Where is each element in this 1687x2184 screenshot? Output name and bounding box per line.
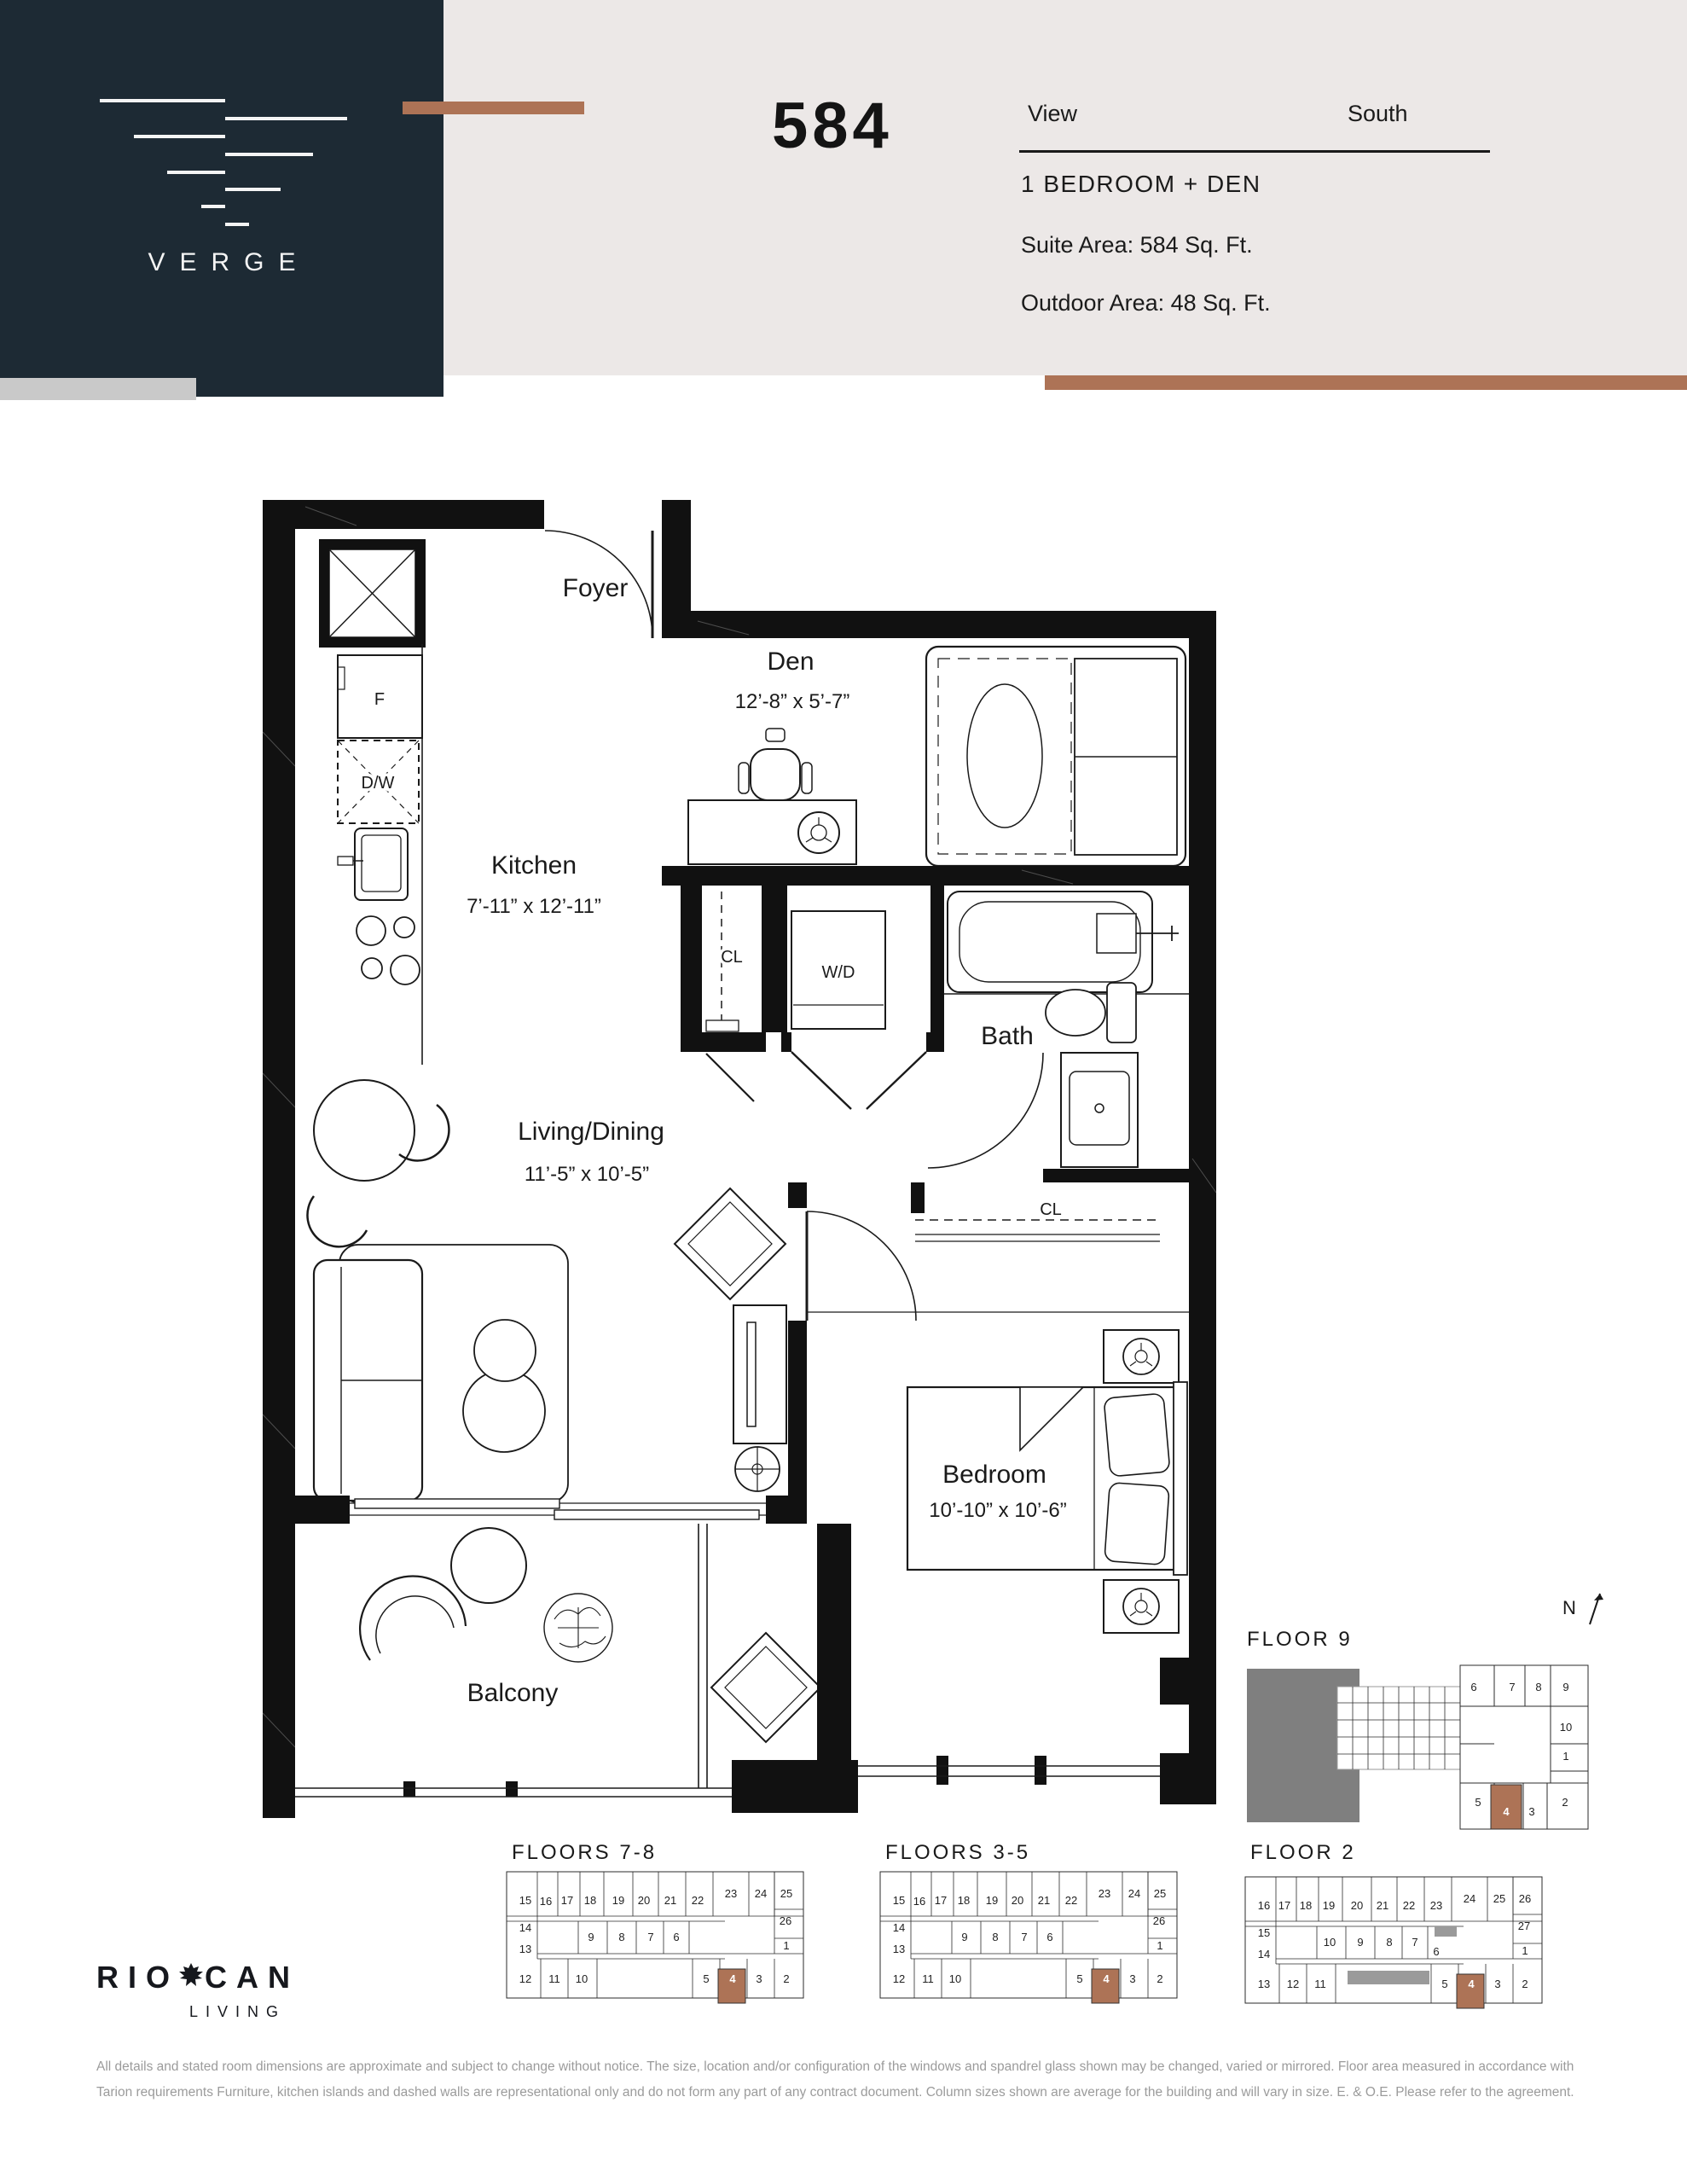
keyplan-floors78: 1516171819202122232425141398762611211105… <box>503 1860 810 2007</box>
keyplan-unit-26: 26 <box>1519 1892 1531 1905</box>
keyplan-unit-21: 21 <box>1038 1894 1050 1907</box>
keyplan-unit-17: 17 <box>561 1894 573 1907</box>
keyplan-unit-15: 15 <box>519 1894 531 1907</box>
keyplan-unit-6: 6 <box>1433 1945 1439 1958</box>
plant <box>544 1594 612 1662</box>
unit-number: 584 <box>772 89 893 163</box>
keyplan-unit-27: 27 <box>1518 1920 1530 1932</box>
vanity <box>1061 1053 1138 1167</box>
keyplan-unit-22: 22 <box>692 1894 704 1907</box>
keyplan-unit-6: 6 <box>1046 1931 1052 1943</box>
keyplan-unit-6: 6 <box>673 1931 679 1943</box>
floorplan-sheet: VERGE 584 View South 1 BEDROOM + DEN Sui… <box>0 0 1687 2184</box>
keyplan-unit-23: 23 <box>1099 1887 1110 1900</box>
keyplan-unit-16: 16 <box>1258 1899 1270 1912</box>
keyplan-unit-25: 25 <box>1493 1892 1505 1905</box>
keyplan-unit-20: 20 <box>1351 1899 1363 1912</box>
keyplan-unit-7: 7 <box>647 1931 653 1943</box>
balcony-label: Balcony <box>467 1679 559 1707</box>
keyplan-unit-18: 18 <box>958 1894 970 1907</box>
keyplan-unit-8: 8 <box>1535 1681 1541 1693</box>
keyplan-unit-19: 19 <box>986 1894 998 1907</box>
keyplan-unit-5: 5 <box>1076 1972 1082 1985</box>
balcony-chair <box>360 1576 466 1660</box>
bath-label: Bath <box>981 1022 1034 1050</box>
keyplan-unit-14: 14 <box>519 1921 531 1934</box>
foyer-label: Foyer <box>563 574 629 602</box>
riocan-logo: RIO CAN <box>96 1960 299 1995</box>
keyplan-unit-24: 24 <box>755 1887 767 1900</box>
furniture-layer <box>307 539 1189 1742</box>
keyplan-unit-13: 13 <box>1258 1978 1270 1990</box>
keyplan-unit-20: 20 <box>638 1894 650 1907</box>
amenity-strip-small <box>1435 1926 1457 1937</box>
keyplan-unit-2: 2 <box>1157 1972 1162 1985</box>
keyplan-unit-26: 26 <box>1153 1914 1165 1927</box>
keyplan-unit-1: 1 <box>1562 1750 1568 1763</box>
keyplan-unit-18: 18 <box>1300 1899 1312 1912</box>
riocan-logo-rio: RIO <box>96 1960 179 1995</box>
keyplan-unit-10: 10 <box>1560 1721 1572 1734</box>
keyplan-unit-4: 4 <box>1503 1805 1510 1818</box>
keyplan-unit-1: 1 <box>1157 1939 1162 1952</box>
amenity-strip <box>1348 1971 1429 1984</box>
keyplan-unit-19: 19 <box>612 1894 624 1907</box>
kitchen-label: Kitchen <box>491 851 577 880</box>
keyplan-unit-14: 14 <box>1258 1948 1270 1960</box>
keyplan-floors35: 1516171819202122232425141398762611211105… <box>877 1860 1184 2007</box>
riocan-logo-living: LIVING <box>189 2003 286 2021</box>
keyplan-unit-16: 16 <box>540 1895 552 1908</box>
keyplan-unit-8: 8 <box>618 1931 624 1943</box>
keyplan-unit-11: 11 <box>548 1972 560 1985</box>
keyplan-unit-15: 15 <box>893 1894 905 1907</box>
unit-numbers: 1516171819202122232425141398762611211105… <box>893 1887 1166 1985</box>
keyplan-unit-5: 5 <box>703 1972 709 1985</box>
keyplan-unit-19: 19 <box>1323 1899 1335 1912</box>
keyplan-unit-23: 23 <box>1430 1899 1442 1912</box>
accent-chair <box>675 1188 786 1299</box>
dining-set <box>307 1080 449 1246</box>
living-dims: 11’-5” x 10’-5” <box>525 1163 649 1186</box>
keyplan-unit-17: 17 <box>1278 1899 1290 1912</box>
accent-bar-bottom <box>1045 375 1687 390</box>
keyplan-unit-5: 5 <box>1441 1978 1447 1990</box>
kitchen-dims: 7’-11” x 12’-11” <box>467 895 601 918</box>
view-value: South <box>1348 101 1408 127</box>
keyplan-unit-10: 10 <box>1324 1936 1336 1949</box>
keyplan-unit-9: 9 <box>961 1931 967 1943</box>
brand-block: VERGE <box>0 0 443 397</box>
keyplan-unit-4: 4 <box>729 1972 736 1985</box>
keyplan-unit-2: 2 <box>1522 1978 1528 1990</box>
view-label: View <box>1028 101 1077 127</box>
keyplan-unit-21: 21 <box>664 1894 676 1907</box>
sofa <box>314 1260 422 1501</box>
den-label: Den <box>767 648 814 676</box>
keyplan-unit-22: 22 <box>1065 1894 1077 1907</box>
keyplan-unit-24: 24 <box>1464 1892 1475 1905</box>
balcony-table <box>451 1528 526 1603</box>
cooktop <box>357 916 420 985</box>
desk-chair <box>739 729 812 800</box>
outdoor-area: Outdoor Area: 48 Sq. Ft. <box>1021 290 1271 317</box>
tv-console <box>733 1305 786 1443</box>
keyplan-unit-6: 6 <box>1470 1681 1476 1693</box>
nightstand-top <box>1104 1330 1179 1383</box>
fridge-label: F <box>374 690 385 709</box>
keyplan-unit-17: 17 <box>935 1894 947 1907</box>
keyplan-unit-1: 1 <box>1522 1944 1528 1957</box>
keyplan-unit-2: 2 <box>783 1972 789 1985</box>
lounge-chair <box>711 1633 820 1742</box>
closet-rod <box>915 1234 1160 1241</box>
keyplan-unit-10: 10 <box>949 1972 961 1985</box>
disclaimer-line1: All details and stated room dimensions a… <box>96 2059 1649 2075</box>
keyplan-unit-14: 14 <box>893 1921 905 1934</box>
keyplan-unit-7: 7 <box>1412 1936 1417 1949</box>
gray-accent-strip <box>0 378 196 400</box>
bedroom-label: Bedroom <box>942 1461 1046 1489</box>
keyplan-unit-3: 3 <box>1129 1972 1135 1985</box>
keyplan-unit-12: 12 <box>893 1972 905 1985</box>
keyplan-unit-23: 23 <box>725 1887 737 1900</box>
keyplan-unit-8: 8 <box>992 1931 998 1943</box>
keyplan-unit-5: 5 <box>1475 1796 1481 1809</box>
keyplan-unit-12: 12 <box>519 1972 531 1985</box>
poufs <box>463 1320 545 1452</box>
keyplan-unit-10: 10 <box>576 1972 588 1985</box>
floor-plan: Foyer Den 12’-8” x 5’-7” Kitchen 7’-11” … <box>254 476 1254 1833</box>
shaft <box>319 539 426 648</box>
keyplan-unit-3: 3 <box>756 1972 762 1985</box>
keyplan-unit-15: 15 <box>1258 1926 1270 1939</box>
closet-shelf <box>706 1020 739 1031</box>
keyplan-unit-7: 7 <box>1021 1931 1027 1943</box>
keyplan-unit-22: 22 <box>1403 1899 1415 1912</box>
suite-type: 1 BEDROOM + DEN <box>1021 171 1261 198</box>
keyplan-unit-11: 11 <box>922 1972 934 1985</box>
keyplan-unit-11: 11 <box>1314 1978 1326 1990</box>
keyplan-unit-3: 3 <box>1494 1978 1500 1990</box>
keyplan-unit-4: 4 <box>1468 1978 1475 1990</box>
keyplan-unit-9: 9 <box>588 1931 594 1943</box>
sink <box>338 828 408 900</box>
dishwasher-label: D/W <box>362 774 395 793</box>
keyplan-unit-3: 3 <box>1528 1805 1534 1818</box>
keyplan-unit-16: 16 <box>913 1895 925 1908</box>
accent-bar-top <box>403 102 584 114</box>
keyplan-unit-7: 7 <box>1509 1681 1515 1693</box>
keyplan-unit-13: 13 <box>893 1943 905 1955</box>
keyplan-unit-26: 26 <box>780 1914 791 1927</box>
desk <box>688 800 856 864</box>
disclaimer-line2: Tarion requirements Furniture, kitchen i… <box>96 2085 1649 2100</box>
washer-dryer-label: W/D <box>822 963 855 982</box>
keyplan-unit-13: 13 <box>519 1943 531 1955</box>
floor-lamp <box>735 1447 780 1491</box>
living-label: Living/Dining <box>518 1118 664 1146</box>
foyer-closet-label: CL <box>721 948 743 967</box>
keyplan-floor2: 1617181920212223242526151410987627113121… <box>1242 1865 1549 2012</box>
keyplan-unit-25: 25 <box>1154 1887 1166 1900</box>
keyplan-unit-4: 4 <box>1103 1972 1110 1985</box>
keyplan-unit-8: 8 <box>1386 1936 1392 1949</box>
keyplan-unit-24: 24 <box>1128 1887 1140 1900</box>
bathtub <box>948 892 1179 992</box>
maple-leaf-icon <box>179 1963 203 1987</box>
keyplan-unit-20: 20 <box>1012 1894 1023 1907</box>
keyplan-unit-2: 2 <box>1562 1796 1568 1809</box>
keyplan-unit-18: 18 <box>584 1894 596 1907</box>
bedroom-dims: 10’-10” x 10’-6” <box>929 1499 1066 1522</box>
riocan-logo-can: CAN <box>205 1960 299 1995</box>
keyplan-unit-9: 9 <box>1562 1681 1568 1693</box>
keyplan-unit-25: 25 <box>780 1887 792 1900</box>
keyplan-unit-12: 12 <box>1287 1978 1299 1990</box>
suite-area: Suite Area: 584 Sq. Ft. <box>1021 232 1253 258</box>
keyplan-unit-9: 9 <box>1357 1936 1363 1949</box>
keyplan-title-floor2: FLOOR 2 <box>1250 1841 1356 1865</box>
verge-logo-icon <box>0 0 443 397</box>
north-arrow-icon <box>1580 1585 1610 1628</box>
keyplan-unit-21: 21 <box>1377 1899 1388 1912</box>
brand-wordmark: VERGE <box>128 248 316 277</box>
sofa-bed <box>926 647 1186 866</box>
north-label: N <box>1562 1597 1576 1619</box>
unit-numbers: 1516171819202122232425141398762611211105… <box>519 1887 792 1985</box>
bedroom-closet-label: CL <box>1040 1200 1062 1219</box>
nightstand-bottom <box>1104 1580 1179 1633</box>
keyplan-floor9: 67891015432 <box>1242 1658 1593 1838</box>
den-dims: 12’-8” x 5’-7” <box>735 690 850 713</box>
keyplan-unit-1: 1 <box>783 1939 789 1952</box>
header-rule <box>1019 150 1490 153</box>
keyplan-title-floor9: FLOOR 9 <box>1247 1628 1353 1652</box>
